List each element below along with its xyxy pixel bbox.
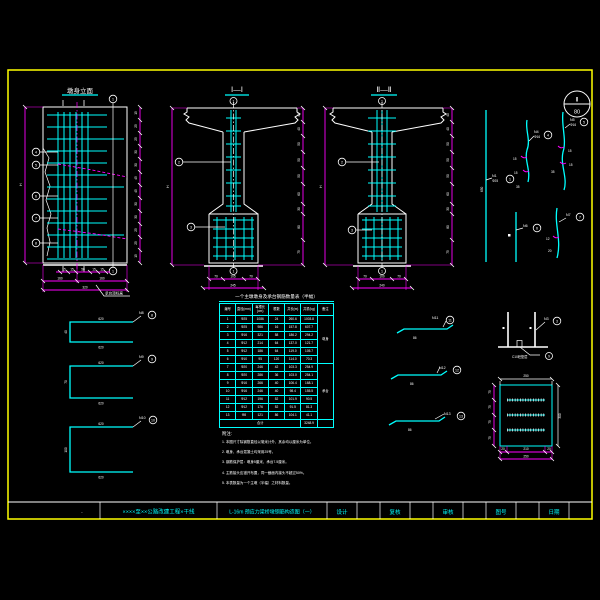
table-cell: 246	[252, 388, 268, 396]
callout-number: 1	[381, 269, 383, 273]
dim-label: 50	[297, 142, 301, 146]
table-cell: 36	[268, 372, 284, 380]
table-cell: 157.8	[285, 324, 301, 332]
table-cell: 1003.8	[301, 316, 317, 324]
hairpin-bar-1: 620 620 40 N8 8	[64, 311, 156, 350]
bar-label: N10	[139, 416, 146, 420]
table-cell: 246	[252, 364, 268, 372]
table-cell: 12	[220, 404, 236, 412]
bar-label: N9	[139, 355, 144, 359]
table-cell: Φ20	[236, 364, 252, 372]
dim-label: 50	[446, 174, 450, 178]
bar-callout-top: 1	[109, 95, 117, 103]
dim-label: 30	[134, 202, 138, 206]
section1-right-dims: 40 40 50 50 50 60 30 80 75	[258, 106, 305, 267]
dim-label: 620	[98, 317, 104, 321]
table-cell: 95	[252, 356, 268, 364]
table-cell: 106.4	[285, 380, 301, 388]
dim-label: 15	[569, 163, 573, 167]
callout-number: 5	[583, 120, 585, 124]
dim-label: 86	[413, 336, 417, 340]
callout-number: 9	[151, 357, 153, 361]
table-cell: 98.4	[285, 388, 301, 396]
plan-bottom-dims: 20 210 20 250	[498, 446, 554, 461]
table-cell: 121	[252, 412, 268, 420]
table-total-label: 合计	[220, 420, 301, 428]
table-cell: 8	[220, 372, 236, 380]
table-row: 11Φ1219652101.990.5	[220, 396, 334, 404]
s-bar-2-shape	[562, 112, 565, 190]
note-number: 9	[546, 353, 553, 360]
table-cell: 4	[220, 340, 236, 348]
table-cell: 70.3	[301, 356, 317, 364]
dim-label: 30	[134, 215, 138, 219]
bar-number: 7	[576, 213, 584, 221]
table-cell: 86	[268, 412, 284, 420]
table-remark-cell: 承台	[317, 364, 333, 420]
dim-label: 160	[57, 277, 63, 281]
dim-label: 60	[297, 192, 301, 196]
footing-plan-view: 250 300 75 75 75 75 20 210 20 250	[488, 374, 562, 461]
table-cell: 186.2	[285, 332, 301, 340]
table-cell: Φ12	[236, 340, 252, 348]
bar-size: Φ16	[570, 123, 576, 127]
height-dimension: H	[166, 106, 204, 267]
table-cell: 64	[268, 348, 284, 356]
callout-number: 12	[455, 368, 459, 372]
dim-label: 70	[363, 275, 367, 279]
callout-number: 1	[112, 269, 114, 273]
bar-number: 8	[148, 311, 156, 319]
table-cell: 9	[220, 380, 236, 388]
hairpin-bar-3: 620 620 100 N10 10	[64, 416, 157, 480]
table-cell: 254.1	[301, 372, 317, 380]
dim-label: 100	[379, 275, 385, 279]
dim-label: 250	[523, 374, 529, 378]
bar-shape-details: 650 N1 Φ25 1 N4 Φ16 4 15 15 35 N5 Φ16 5 …	[480, 110, 588, 262]
elevation-title: 墩身立面	[67, 86, 94, 95]
dim-label: 50	[81, 268, 85, 272]
table-cell: Φ16	[236, 380, 252, 388]
detail-bubble: Ⅱ 80	[564, 91, 590, 117]
dim-label: 30	[297, 207, 301, 211]
table-row: 13Φ812186104.141.1	[220, 412, 334, 420]
dim-label: 35	[516, 185, 520, 189]
column-callout: 2	[338, 158, 379, 166]
callout-number: 8	[35, 241, 37, 245]
dim-label: 620	[98, 346, 104, 350]
table-cell: 6	[220, 356, 236, 364]
bar-size: Φ16	[534, 135, 540, 139]
table-header-cell: 编号	[220, 304, 236, 316]
notes-block: 附注: 1. 本图尺寸除钢筋直径以毫米计外，其余均以厘米为单位。2. 墩身、承台…	[222, 431, 362, 491]
table-header-cell: 共长(m)	[285, 304, 301, 316]
table-cell: 10	[220, 388, 236, 396]
footing-callout: 3	[187, 223, 225, 231]
stirrup-detail: N3 3 C10砼垫层 9	[498, 312, 561, 360]
table-cell: 120	[268, 356, 284, 364]
bar-callout-bottom: 1	[109, 267, 117, 275]
table-cell: 114.0	[285, 356, 301, 364]
bar-number: 12	[453, 366, 461, 374]
section-title: Ⅰ—Ⅰ	[231, 85, 243, 94]
dim-label: 35	[551, 170, 555, 174]
table-cell: 119.0	[285, 348, 301, 356]
bar-label: N3	[544, 317, 549, 321]
section-title: Ⅱ—Ⅱ	[377, 85, 392, 94]
table-total-value: 3248.9	[301, 420, 317, 428]
table-cell: 254.9	[301, 364, 317, 372]
dim-label: 30	[134, 163, 138, 167]
table-cell: 103.0	[285, 372, 301, 380]
table-cell: Φ16	[236, 332, 252, 340]
table-cell: 16	[268, 324, 284, 332]
callout-number: 5	[35, 163, 37, 167]
section2-right-dims: 40 40 50 50 50 60 30 80 75	[406, 106, 454, 267]
table-cell: 13	[220, 412, 236, 420]
dim-label: 20	[548, 249, 552, 253]
dim-label: H	[166, 185, 170, 188]
cut-marks	[63, 100, 84, 272]
table-header-cell: 直径(mm)	[236, 304, 252, 316]
bar-label: N12	[439, 366, 446, 370]
table-cell: 168.1	[301, 380, 317, 388]
bar-label: N4	[534, 130, 539, 134]
bar-label: N11	[432, 316, 438, 320]
table-cell: Φ16	[236, 388, 252, 396]
dim-label: 320	[82, 286, 88, 290]
table-cell	[317, 420, 333, 428]
callout-number: 4	[35, 150, 37, 154]
table-row: 1Φ25108624260.61003.8墩身	[220, 316, 334, 324]
hairpin-bar-2: 620 620 70 N9 9	[64, 355, 156, 406]
notes-items: 1. 本图尺寸除钢筋直径以毫米计外，其余均以厘米为单位。2. 墩身、承台混凝土均…	[222, 440, 362, 487]
table-cell: 286	[252, 372, 268, 380]
table-cell: 137.0	[285, 340, 301, 348]
dim-label: 86	[408, 428, 412, 432]
dim-label: 45	[134, 176, 138, 180]
callout-number: 10	[151, 418, 155, 422]
table-cell: 607.7	[301, 324, 317, 332]
field-date: 日期	[548, 509, 560, 516]
dim-label: 300	[558, 413, 562, 419]
dim-label: H	[19, 183, 23, 186]
table-row: 12Φ121765291.581.3	[220, 404, 334, 412]
dim-label: 620	[98, 402, 104, 406]
dim-label: 75	[446, 250, 450, 254]
bar-number: 3	[553, 317, 561, 325]
dim-label: 75	[297, 250, 301, 254]
dim-label: 75	[488, 436, 492, 440]
table-cell: Φ12	[236, 404, 252, 412]
tick-mark	[503, 327, 505, 329]
note-item: 3. 钢筋保护层：墩身5厘米，承台7.5厘米。	[222, 460, 362, 465]
table-cell: 40	[268, 388, 284, 396]
table-cell: 155.5	[301, 388, 317, 396]
table-cell: Φ25	[236, 316, 252, 324]
callout-number: 1	[509, 177, 511, 181]
dim-label: 15	[62, 268, 66, 272]
field-fig-no: 图号	[495, 508, 507, 516]
dim-label: 210	[523, 447, 529, 451]
rebar-schedule: 一个主墩墩身及承台钢筋数量表（半幅） 编号直径(mm)每根长(cm)根数共长(m…	[219, 294, 334, 428]
plan-left-dims: 75 75 75 75	[488, 383, 496, 448]
table-header-cell: 备注	[317, 304, 333, 316]
project-name: ××××至××公路改建工程×干线	[123, 508, 195, 516]
note-item: 5. 本表数量为一个主墩（半幅）之材料数量。	[222, 481, 362, 486]
plan-rebar-rows	[507, 400, 545, 430]
c-bar-shape	[556, 208, 558, 258]
corner-dot: ·	[81, 510, 83, 516]
dim-label: 25	[134, 241, 138, 245]
callout-number: 2	[178, 160, 180, 164]
dim-label: 80	[297, 225, 301, 229]
bar-label: N8	[139, 311, 144, 315]
bubble-top-label: Ⅱ	[575, 97, 578, 104]
flat-bar-2: N12 12 86	[391, 366, 461, 386]
bar-size: Φ25	[492, 179, 498, 183]
s-bar-1-shape	[526, 120, 529, 182]
table-row: 10Φ162464098.4155.5	[220, 388, 334, 396]
bar-label: N7	[566, 213, 571, 217]
callout-number: 8	[151, 313, 153, 317]
dim-label: 75	[488, 390, 492, 394]
bar-number: 10	[149, 416, 157, 424]
table-cell: 7	[220, 364, 236, 372]
bottom-callout: 1	[379, 268, 386, 275]
dim-label: 100	[64, 447, 68, 453]
dim-label: 250	[523, 455, 529, 459]
rebar-table-title: 一个主墩墩身及承台钢筋数量表（半幅）	[219, 294, 334, 302]
table-cell: 58	[268, 332, 284, 340]
table-row: 9Φ1626640106.4168.1	[220, 380, 334, 388]
table-cell: 81.3	[301, 404, 317, 412]
height-dimension: H	[319, 106, 353, 267]
table-cell: 103.3	[285, 364, 301, 372]
dim-label: 70	[249, 275, 253, 279]
dim-label: 40	[64, 330, 68, 334]
callout-number: 13	[459, 414, 463, 418]
bar-number: 9	[148, 355, 156, 363]
dim-label: 15	[92, 268, 96, 272]
dim-label: 620	[98, 361, 104, 365]
cushion-note: C10砼垫层	[512, 354, 527, 359]
table-cell: 5	[220, 348, 236, 356]
table-cell: 41.1	[301, 412, 317, 420]
table-cell: 2	[220, 324, 236, 332]
callout-number: 7	[35, 216, 37, 220]
bar-label: N13	[444, 412, 451, 416]
table-cell: 176	[252, 404, 268, 412]
bar-number: 13	[457, 412, 465, 420]
callout-number: 1	[233, 269, 235, 273]
table-cell: 104.1	[285, 412, 301, 420]
leader-note: 承台顶标高	[105, 291, 123, 296]
dim-label: 45	[134, 189, 138, 193]
elevation-right-dims: 15 25 25 30 30 45 45 30 30 25 25 15	[134, 105, 142, 265]
dim-label: 15	[70, 268, 74, 272]
tick-mark	[530, 327, 532, 329]
table-cell: 90.5	[301, 396, 317, 404]
table-total-row: 合计3248.9	[220, 420, 334, 428]
bubble-bottom-label: 80	[574, 110, 580, 116]
dim-label: 70	[397, 275, 401, 279]
dim-label: 105	[230, 275, 236, 279]
dim-label: 12	[546, 237, 550, 241]
callout-number: 6	[35, 194, 37, 198]
bottom-callout: 1	[230, 268, 237, 275]
table-row: 4Φ1221464137.0121.7	[220, 340, 334, 348]
table-cell: 214	[252, 340, 268, 348]
dim-label: 75	[488, 405, 492, 409]
dim-label: 30	[134, 150, 138, 154]
dim-label: 50	[297, 174, 301, 178]
table-row: 6Φ1095120114.070.3	[220, 356, 334, 364]
dim-label: 25	[134, 228, 138, 232]
dim-label: 15	[100, 268, 104, 272]
dim-label: 20	[501, 447, 505, 451]
dim-label: 40	[297, 127, 301, 131]
section-1-view: Ⅰ—Ⅰ 1 2 3 H 40 40 50	[166, 85, 305, 290]
dim-label: 50	[446, 142, 450, 146]
table-row: 7Φ2024642103.3254.9承台	[220, 364, 334, 372]
dim-label: 25	[134, 124, 138, 128]
callout-number: 9	[548, 354, 550, 358]
bar-label: N5	[570, 118, 575, 122]
table-cell: 91.5	[285, 404, 301, 412]
pier-outline	[43, 107, 127, 263]
callout-number: 3	[190, 225, 192, 229]
table-cell: 196	[252, 396, 268, 404]
table-row: 8Φ2028636103.0254.1	[220, 372, 334, 380]
dim-label: 620	[98, 422, 104, 426]
bar-number: 4	[544, 131, 552, 139]
field-review: 审核	[442, 508, 454, 516]
dim-label: 86	[410, 382, 414, 386]
table-row: 3Φ1632158186.2294.2	[220, 332, 334, 340]
dim-label: 25	[134, 137, 138, 141]
dim-label: 15	[513, 157, 517, 161]
callout-number: 3	[351, 228, 353, 232]
bar-number: 11	[446, 316, 454, 324]
dim-label: 620	[98, 476, 104, 480]
dim-label: 15	[134, 254, 138, 258]
dim-label: 650	[480, 186, 484, 192]
elevation-view: 墩身立面 1 1 4 5 6 7 8 H	[19, 86, 142, 296]
pier-outline	[184, 108, 300, 263]
note-item: 2. 墩身、承台混凝土均采用25号。	[222, 450, 362, 455]
drawing-title: L-16m 预应力梁桥墩钢筋构造图（一）	[229, 509, 315, 516]
dim-label: 15	[514, 171, 518, 175]
dim-label: 70	[214, 275, 218, 279]
callout-number: 7	[579, 215, 581, 219]
dim-label: 50	[446, 158, 450, 162]
table-cell: 42	[268, 364, 284, 372]
dim-label: 20	[547, 447, 551, 451]
flat-bar-1: N11 11 86	[397, 316, 454, 340]
table-cell: 24	[268, 316, 284, 324]
table-header-cell: 共重(kg)	[301, 304, 317, 316]
callout-number: 1	[112, 97, 114, 101]
bar-number: 6	[533, 224, 541, 232]
bar-number: 1	[506, 175, 514, 183]
table-cell: 1086	[252, 316, 268, 324]
table-cell: Φ25	[236, 324, 252, 332]
callout-number: 6	[536, 226, 538, 230]
bar-number: 5	[580, 118, 588, 126]
notes-label: 附注:	[222, 431, 362, 437]
table-cell: 294.2	[301, 332, 317, 340]
table-cell: Φ12	[236, 348, 252, 356]
field-check: 复核	[389, 508, 401, 516]
dim-label: 15	[134, 111, 138, 115]
table-header-cell: 每根长(cm)	[252, 304, 268, 316]
callout-number: 11	[448, 318, 452, 322]
table-cell: 52	[268, 404, 284, 412]
table-cell: 3	[220, 332, 236, 340]
table-cell: 1	[220, 316, 236, 324]
dim-label: 80	[446, 225, 450, 229]
table-cell: 266	[252, 380, 268, 388]
table-cell: 986	[252, 324, 268, 332]
dim-label: 40	[446, 113, 450, 117]
table-row: 5Φ1218664119.0105.7	[220, 348, 334, 356]
tick-mark	[508, 234, 511, 237]
table-cell: Φ8	[236, 412, 252, 420]
dim-label: 245	[230, 284, 236, 288]
key-notch	[517, 341, 522, 348]
table-cell: 186	[252, 348, 268, 356]
table-cell: Φ12	[236, 396, 252, 404]
dim-label: 30	[446, 207, 450, 211]
table-cell: 11	[220, 396, 236, 404]
table-row: 2Φ2598616157.8607.7	[220, 324, 334, 332]
dim-label: 160	[99, 277, 105, 281]
section-2-view: Ⅱ—Ⅱ 1 2 3 H 40 40 50	[319, 85, 454, 290]
dim-label: 15	[568, 149, 572, 153]
note-item: 4. 主筋接头应错开布置，同一截面内接头不超过50%。	[222, 471, 362, 476]
table-remark-cell: 墩身	[317, 316, 333, 364]
field-design: 设计	[336, 508, 348, 516]
dim-label: 70	[64, 380, 68, 384]
broken-edge-line	[43, 148, 51, 256]
table-cell: 64	[268, 340, 284, 348]
table-cell: Φ20	[236, 372, 252, 380]
dim-label: 40	[446, 127, 450, 131]
table-cell: 101.9	[285, 396, 301, 404]
note-item: 1. 本图尺寸除钢筋直径以毫米计外，其余均以厘米为单位。	[222, 440, 362, 445]
rebar-table: 编号直径(mm)每根长(cm)根数共长(m)共重(kg)备注1Φ25108624…	[219, 303, 334, 428]
footing-callout: 3	[348, 226, 372, 234]
dim-label: 50	[297, 158, 301, 162]
callout-number: 3	[556, 319, 558, 323]
table-header-cell: 根数	[268, 304, 284, 316]
table-cell: 321	[252, 332, 268, 340]
bar-label: N1	[492, 174, 497, 178]
table-cell: Φ10	[236, 356, 252, 364]
title-block: · ××××至××公路改建工程×干线 L-16m 预应力梁桥墩钢筋构造图（一） …	[8, 502, 592, 519]
callout-number: 2	[341, 160, 343, 164]
flat-bar-3: N13 13 86	[389, 412, 465, 432]
table-cell: 52	[268, 396, 284, 404]
table-cell: 260.6	[285, 316, 301, 324]
callout-number: 4	[547, 133, 549, 137]
table-cell: 105.7	[301, 348, 317, 356]
table-cell: 40	[268, 380, 284, 388]
dim-label: 240	[379, 284, 385, 288]
bar-label: N6	[523, 224, 528, 228]
dim-label: 60	[446, 192, 450, 196]
